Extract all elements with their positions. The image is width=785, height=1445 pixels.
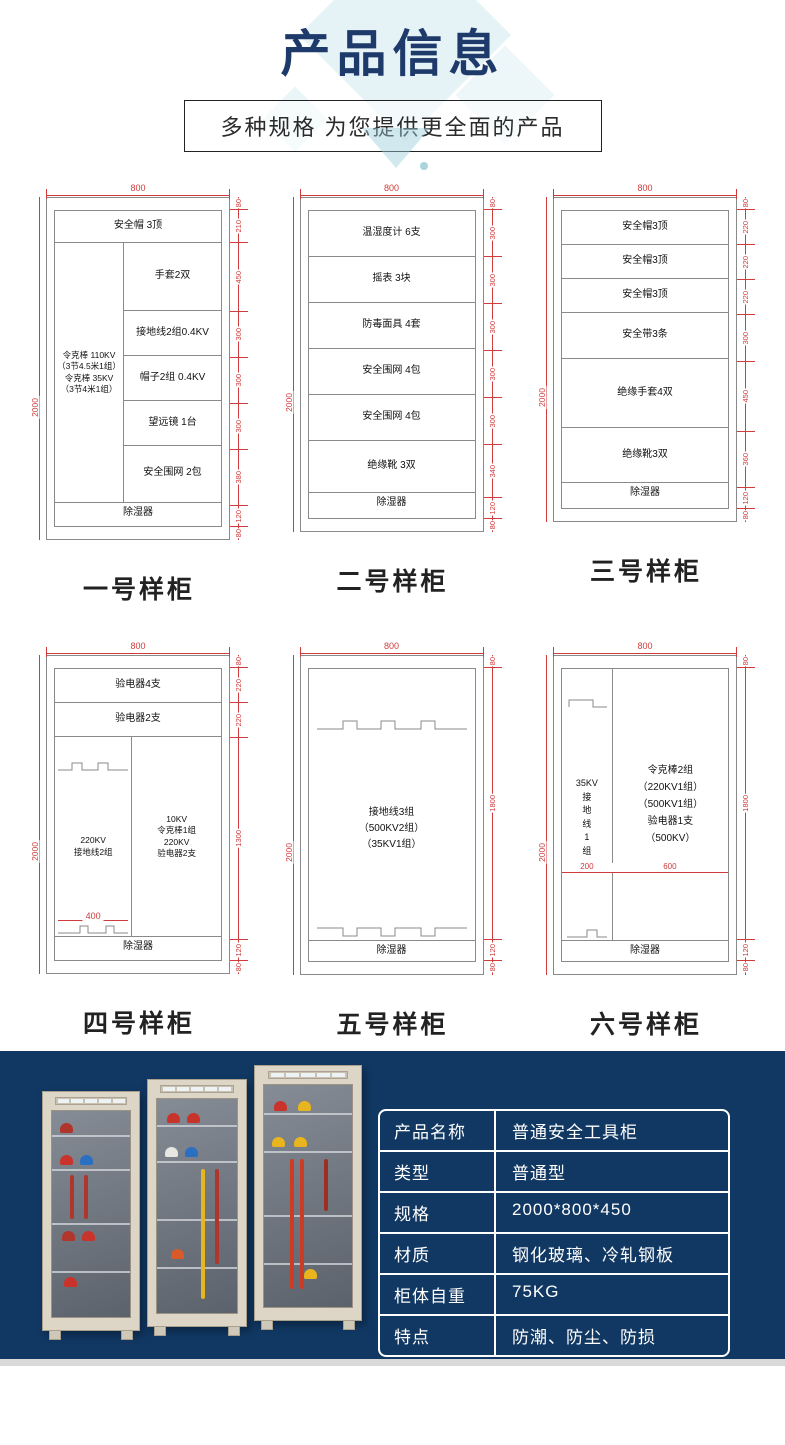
compartment-label: （500KV1组） (638, 796, 704, 813)
segment-dimensions: 80 220 220 220 300 450 360 120 80 (737, 197, 755, 522)
width-dimension: 800 (634, 183, 655, 194)
dimension-value: 80 (489, 520, 497, 530)
dimension-value: 80 (235, 198, 243, 208)
compartment-label: （35KV1组） (359, 837, 425, 853)
compartment-label: （500KV2组） (359, 821, 425, 837)
cabinet-outline: 验电器4支 验电器2支 220KV 接地线2组 4 (46, 655, 230, 974)
dimension-value: 380 (235, 470, 243, 485)
dimension-value: 300 (489, 320, 497, 335)
width-dimension-line: 800 (300, 184, 484, 196)
width-dimension: 800 (127, 641, 148, 652)
compartment-label: 220KV (164, 837, 190, 848)
triangle-decoration (362, 128, 430, 168)
cabinet-outline: 接地线3组 （500KV2组） （35KV1组） 除湿器 (300, 655, 484, 975)
main-compartment: 接地线3组 （500KV2组） （35KV1组） (309, 669, 475, 941)
dimension-value: 1800 (489, 794, 497, 813)
compartment-label: （500KV） (645, 830, 695, 847)
spec-value: 2000*800*450 (496, 1193, 728, 1232)
height-dimension-line: 2000 (537, 655, 553, 975)
cabinet-diagram-2: 800 2000 温湿度计 6支 摇表 3块 防毒面具 4套 安全围网 4包 安… (284, 184, 502, 606)
dimension-value: 300 (235, 327, 243, 342)
dimension-value: 300 (489, 226, 497, 241)
shelf-label: 安全帽3顶 (562, 279, 728, 313)
dehumidifier-label: 除湿器 (309, 941, 475, 961)
dimension-value: 400 (83, 911, 104, 922)
cabinet-outline: 35KV 接 地 线 1 组 (553, 655, 737, 975)
compartment-label: 令克棒 110KV (63, 350, 116, 361)
compartment-label: 令克棒 35KV (65, 373, 114, 384)
right-compartment: 令克棒2组 （220KV1组） （500KV1组） 验电器1支 （500KV） (612, 669, 728, 940)
dimension-value: 600 (612, 863, 728, 872)
spec-row: 材质 钢化玻璃、冷轧钢板 (380, 1234, 728, 1275)
tool-cabinet-image (254, 1065, 362, 1321)
height-dimension-line: 2000 (284, 197, 300, 532)
cabinet-name: 一号样柜 (30, 570, 248, 606)
shelf-label: 防毒面具 4套 (309, 303, 475, 349)
dimension-value: 220 (235, 713, 243, 728)
shelf-label: 摇表 3块 (309, 257, 475, 303)
cabinet-name: 三号样柜 (537, 552, 755, 588)
shelf-label: 绝缘靴3双 (562, 428, 728, 483)
dimension-value: 120 (489, 943, 497, 958)
shelf-label: 接地线2组0.4KV (124, 311, 221, 356)
width-dimension-line: 800 (553, 184, 737, 196)
dimension-value: 120 (235, 509, 243, 524)
dimension-value: 300 (235, 419, 243, 434)
height-dimension: 2000 (538, 386, 547, 409)
left-compartment: 35KV 接 地 线 1 组 (562, 669, 612, 940)
height-dimension: 2000 (31, 840, 40, 863)
dimension-value: 80 (235, 962, 243, 972)
dimension-value: 300 (742, 331, 750, 346)
segment-dimensions: 80 1800 120 80 (484, 655, 502, 975)
diagram-row-2: 800 2000 验电器4支 验电器2支 220KV (30, 642, 755, 1041)
spec-value: 普通型 (496, 1152, 728, 1191)
dimension-value: 450 (235, 270, 243, 285)
shelf-label: 绝缘靴 3双 (309, 441, 475, 493)
page-header: 产品信息 多种规格 为您提供更全面的产品 (0, 0, 785, 180)
hanger-profile (58, 922, 128, 936)
dimension-value: 120 (235, 943, 243, 958)
dehumidifier-label: 除湿器 (562, 483, 728, 503)
spec-value: 75KG (496, 1275, 728, 1314)
dimension-value: 120 (489, 501, 497, 516)
spec-label: 柜体自重 (380, 1275, 496, 1314)
spec-value: 防潮、防尘、防损 (496, 1316, 728, 1355)
product-photo (42, 1077, 372, 1343)
spec-label: 材质 (380, 1234, 496, 1273)
left-compartment: 令克棒 110KV （3节4.5米1组） 令克棒 35KV （3节4米1组） (55, 243, 123, 502)
shelf-label: 验电器4支 (55, 669, 221, 703)
cabinet-name: 二号样柜 (284, 562, 502, 598)
compartment-label: （3节4.5米1组） (57, 361, 121, 372)
shelf-label: 帽子2组 0.4KV (124, 356, 221, 401)
compartment-label: 令克棒1组 (157, 825, 196, 836)
dimension-value: 450 (742, 389, 750, 404)
width-dimension: 800 (634, 641, 655, 652)
dimension-value: 340 (489, 464, 497, 479)
dimension-value: 1800 (742, 794, 750, 813)
width-dimension-line: 800 (553, 642, 737, 654)
shelf-label: 绝缘手套4双 (562, 359, 728, 428)
spec-table: 产品名称 普通安全工具柜 类型 普通型 规格 2000*800*450 材质 钢… (378, 1109, 730, 1357)
product-footer: 产品名称 普通安全工具柜 类型 普通型 规格 2000*800*450 材质 钢… (0, 1051, 785, 1366)
dimension-value: 1300 (235, 829, 243, 848)
spec-value: 普通安全工具柜 (496, 1111, 728, 1150)
height-dimension: 2000 (538, 841, 547, 864)
spec-row: 规格 2000*800*450 (380, 1193, 728, 1234)
dehumidifier-label: 除湿器 (309, 493, 475, 513)
shelf-label: 安全围网 4包 (309, 395, 475, 441)
shelf-label: 验电器2支 (55, 703, 221, 737)
height-dimension-line: 2000 (30, 655, 46, 974)
dimension-value: 80 (742, 198, 750, 208)
dimension-value: 80 (235, 528, 243, 538)
dimension-value: 360 (742, 452, 750, 467)
dimension-value: 80 (742, 962, 750, 972)
hanger-profile (317, 717, 467, 733)
dimension-value: 200 (562, 863, 612, 872)
hanger-profile (567, 697, 607, 709)
compartment-label: 组 (582, 845, 591, 859)
compartment-label: 接地线3组 (359, 805, 425, 821)
hanger-profile (567, 926, 607, 940)
spec-label: 产品名称 (380, 1111, 496, 1150)
shelf-label: 安全帽 3顶 (55, 211, 221, 243)
width-dimension: 800 (381, 183, 402, 194)
height-dimension-line: 2000 (284, 655, 300, 975)
cabinet-diagrams: 800 2000 安全帽 3顶 令克棒 110KV （3节4.5米1组） 令克棒… (0, 180, 785, 1041)
dimension-value: 220 (742, 255, 750, 270)
spec-row: 类型 普通型 (380, 1152, 728, 1193)
shelf-label: 温湿度计 6支 (309, 211, 475, 257)
cabinet-outline: 温湿度计 6支 摇表 3块 防毒面具 4套 安全围网 4包 安全围网 4包 绝缘… (300, 197, 484, 532)
dimension-value: 120 (742, 491, 750, 506)
diagram-row-1: 800 2000 安全帽 3顶 令克棒 110KV （3节4.5米1组） 令克棒… (30, 184, 755, 606)
dimension-value: 80 (742, 656, 750, 666)
dimension-value: 300 (489, 414, 497, 429)
hanger-profile (58, 759, 128, 773)
cabinet-outline: 安全帽3顶 安全帽3顶 安全帽3顶 安全带3条 绝缘手套4双 绝缘靴3双 除湿器 (553, 197, 737, 522)
segment-dimensions: 80 300 300 300 300 300 340 120 80 (484, 197, 502, 532)
height-dimension: 2000 (285, 391, 294, 414)
segment-dimensions: 80 210 450 300 300 300 380 120 80 (230, 197, 248, 540)
dot-decoration (420, 162, 428, 170)
compartment-label: 220KV (80, 835, 106, 846)
shelf-label: 安全帽3顶 (562, 245, 728, 279)
cabinet-name: 五号样柜 (284, 1005, 502, 1041)
segment-dimensions: 80 220 220 1300 120 80 (230, 655, 248, 974)
compartment-label: 验电器2支 (157, 848, 196, 859)
spec-label: 特点 (380, 1316, 496, 1355)
dimension-value: 220 (742, 290, 750, 305)
dimension-value: 220 (235, 678, 243, 693)
dimension-value: 220 (742, 220, 750, 235)
segment-dimensions: 80 1800 120 80 (737, 655, 755, 975)
dimension-value: 300 (235, 373, 243, 388)
tool-cabinet-image (147, 1079, 247, 1327)
compartment-label: （3节4米1组） (61, 384, 118, 395)
right-compartments: 手套2双 接地线2组0.4KV 帽子2组 0.4KV 望远镜 1台 安全围网 2… (123, 243, 221, 502)
compartment-label: 接地线2组 (74, 847, 113, 858)
cabinet-name: 六号样柜 (537, 1005, 755, 1041)
inner-width-dimension-line: 200 600 (562, 872, 728, 882)
spec-label: 类型 (380, 1152, 496, 1191)
compartment-label: 线 (582, 818, 591, 832)
spec-value: 钢化玻璃、冷轧钢板 (496, 1234, 728, 1273)
cabinet-diagram-6: 800 2000 35KV 接 地 (537, 642, 755, 1041)
height-dimension: 2000 (31, 396, 40, 419)
cabinet-name: 四号样柜 (30, 1004, 248, 1040)
spec-row: 柜体自重 75KG (380, 1275, 728, 1316)
dimension-value: 300 (489, 273, 497, 288)
compartment-label: 10KV (166, 814, 187, 825)
left-compartment: 220KV 接地线2组 400 (55, 737, 131, 936)
width-dimension-line: 800 (46, 642, 230, 654)
bottom-strip (0, 1359, 785, 1366)
height-dimension-line: 2000 (537, 197, 553, 522)
dimension-value: 80 (489, 198, 497, 208)
inner-width-dimension-line: 400 (58, 920, 128, 921)
cabinet-diagram-5: 800 2000 接地线3组 （500KV2组） (284, 642, 502, 1041)
dehumidifier-label: 除湿器 (55, 937, 221, 957)
compartment-label: 1 (584, 831, 589, 845)
compartment-label: 验电器1支 (648, 813, 694, 830)
cabinet-outline: 安全帽 3顶 令克棒 110KV （3节4.5米1组） 令克棒 35KV （3节… (46, 197, 230, 540)
spec-row: 产品名称 普通安全工具柜 (380, 1111, 728, 1152)
dimension-value: 80 (742, 510, 750, 520)
width-dimension: 800 (381, 641, 402, 652)
shelf-label: 望远镜 1台 (124, 401, 221, 446)
dehumidifier-label: 除湿器 (562, 941, 728, 961)
shelf-label: 安全带3条 (562, 313, 728, 359)
compartment-label: 35KV (576, 777, 598, 791)
width-dimension-line: 800 (46, 184, 230, 196)
cabinet-diagram-4: 800 2000 验电器4支 验电器2支 220KV (30, 642, 248, 1041)
width-dimension: 800 (127, 183, 148, 194)
page-title: 产品信息 (0, 0, 785, 86)
dimension-value: 80 (489, 656, 497, 666)
dimension-value: 210 (235, 219, 243, 234)
compartment-label: 令克棒2组 (648, 762, 694, 779)
cabinet-diagram-1: 800 2000 安全帽 3顶 令克棒 110KV （3节4.5米1组） 令克棒… (30, 184, 248, 606)
dimension-value: 120 (742, 943, 750, 958)
dimension-value: 300 (489, 367, 497, 382)
right-compartment: 10KV 令克棒1组 220KV 验电器2支 (131, 737, 221, 936)
spec-label: 规格 (380, 1193, 496, 1232)
compartment-label: 接 (582, 791, 591, 805)
dehumidifier-label: 除湿器 (55, 503, 221, 523)
tool-cabinet-image (42, 1091, 140, 1331)
height-dimension: 2000 (285, 841, 294, 864)
height-dimension-line: 2000 (30, 197, 46, 540)
dimension-value: 80 (235, 656, 243, 666)
dimension-value: 80 (489, 962, 497, 972)
compartment-label: 地 (582, 804, 591, 818)
cabinet-diagram-3: 800 2000 安全帽3顶 安全帽3顶 安全帽3顶 安全带3条 绝缘手套4双 … (537, 184, 755, 606)
compartment-label: （220KV1组） (638, 779, 704, 796)
hanger-profile (317, 924, 467, 940)
shelf-label: 安全帽3顶 (562, 211, 728, 245)
shelf-label: 安全围网 4包 (309, 349, 475, 395)
width-dimension-line: 800 (300, 642, 484, 654)
shelf-label: 手套2双 (124, 243, 221, 311)
shelf-label: 安全围网 2包 (124, 446, 221, 501)
spec-row: 特点 防潮、防尘、防损 (380, 1316, 728, 1355)
